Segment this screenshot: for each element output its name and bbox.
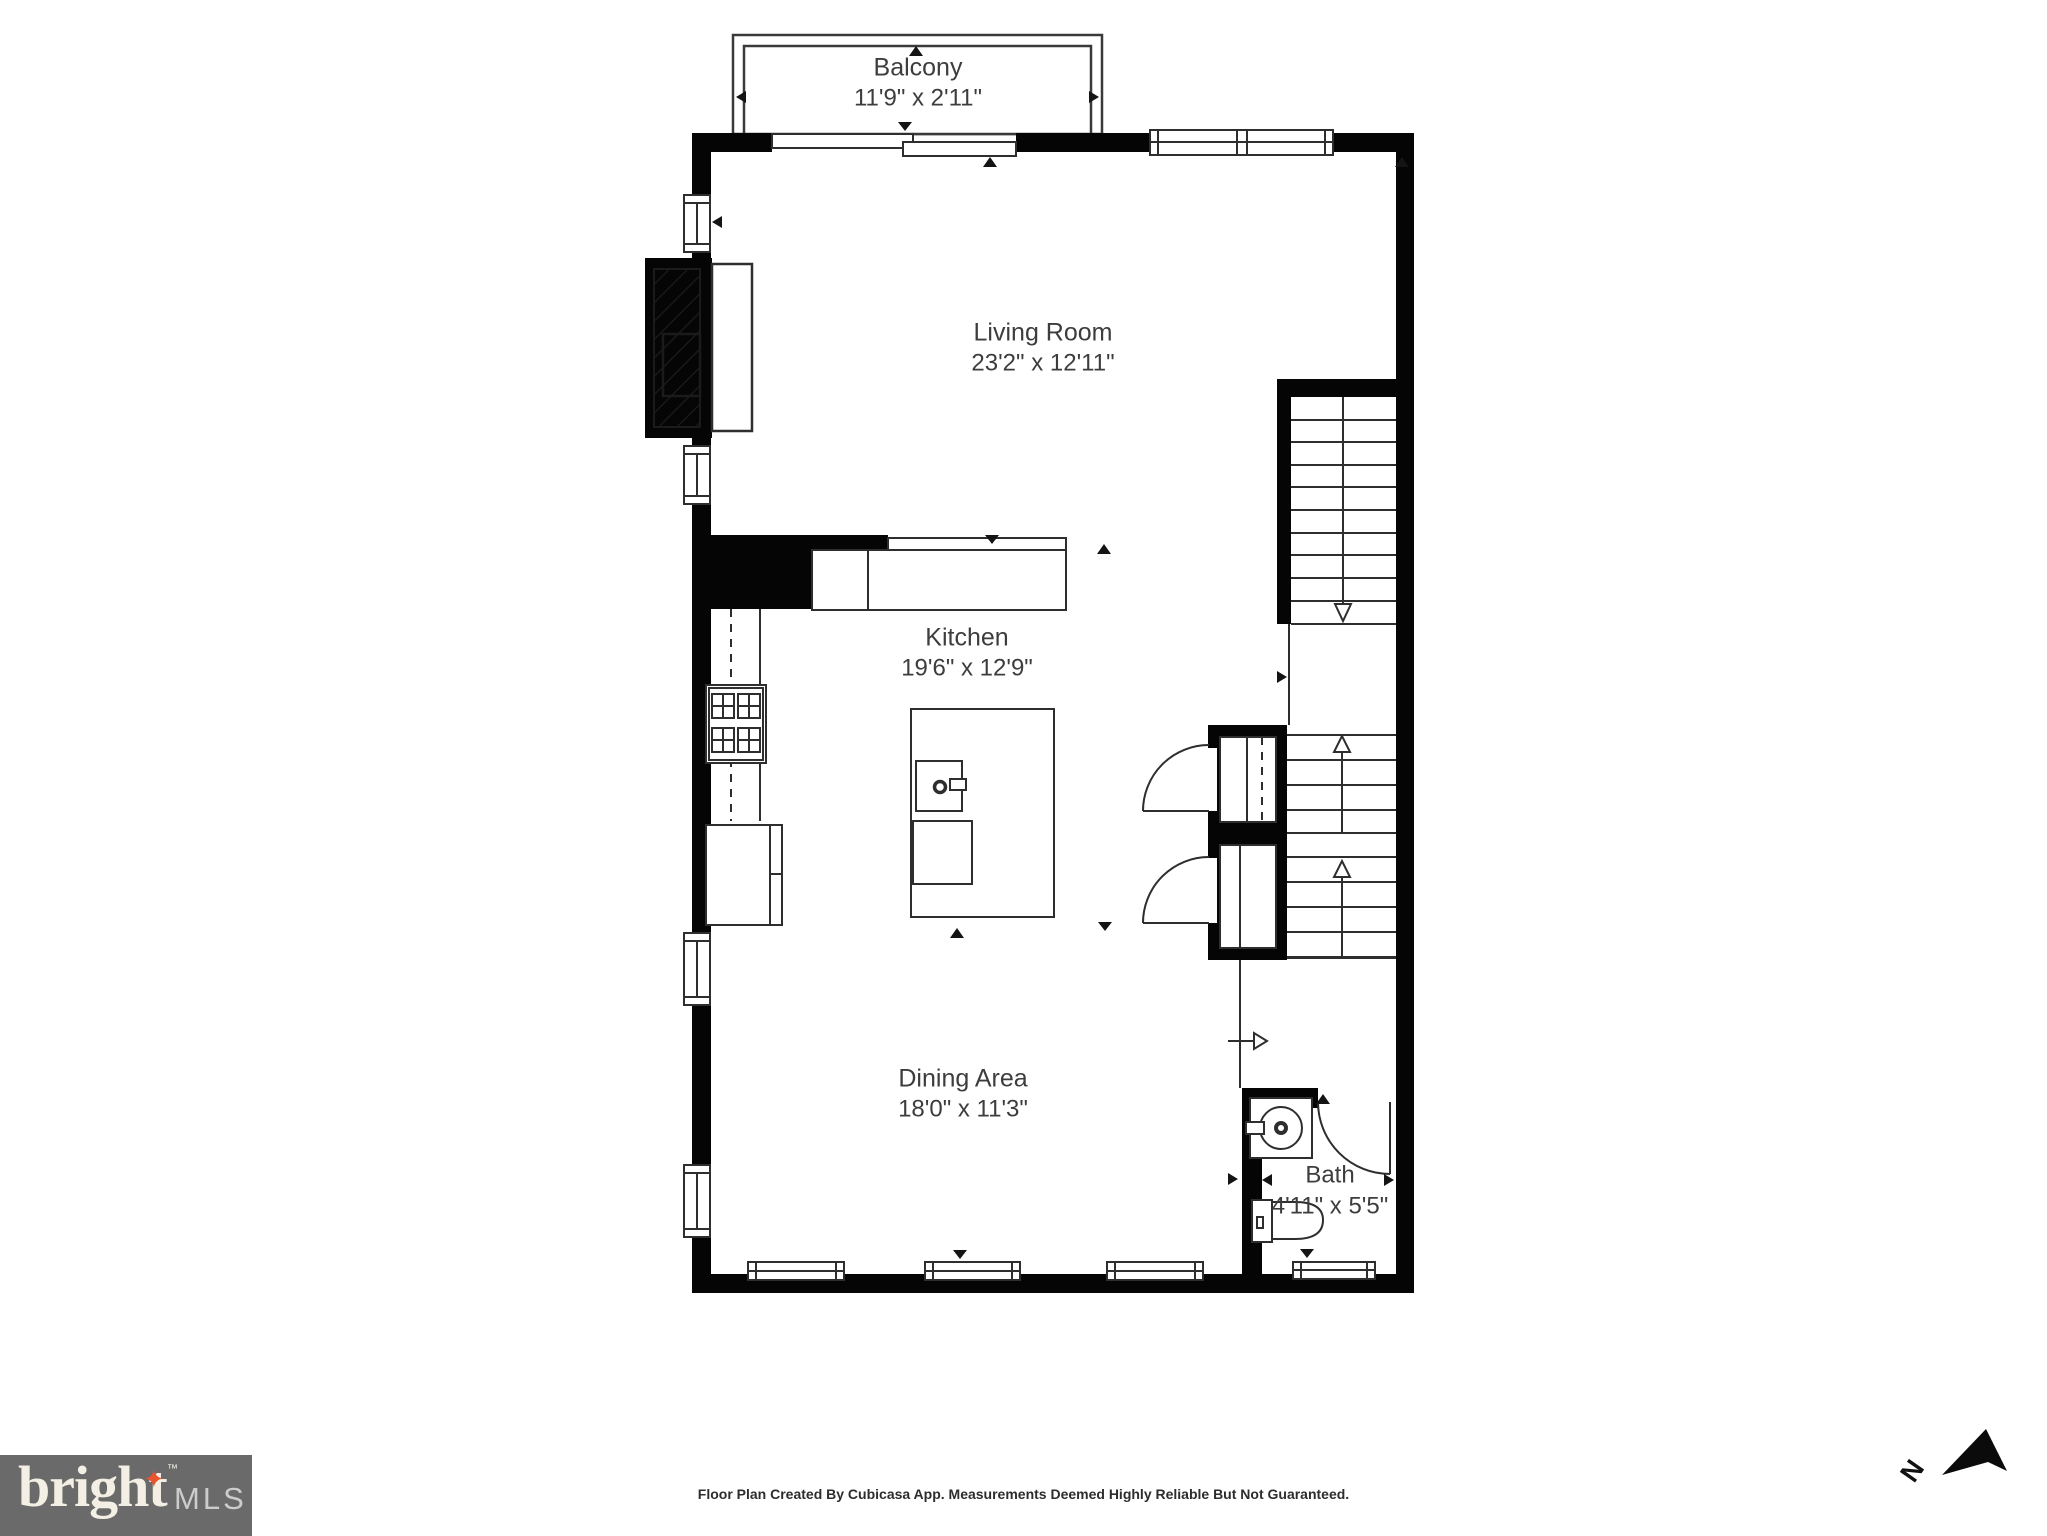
door-opening [1203, 748, 1217, 811]
kitchen-counter [812, 550, 1066, 610]
stairs-up-arrow [1334, 736, 1350, 752]
balcony-label: Balcony 11'9" x 2'11" [854, 52, 982, 115]
wall-kitchen-strip [812, 535, 888, 550]
staircase-lower [1287, 735, 1396, 957]
floor-plan-page: N Balcony 11'9" x 2'11" Living Room 23'2… [0, 0, 2047, 1536]
wall-left [692, 1235, 711, 1274]
window-icon [684, 446, 710, 504]
window-icon [1107, 1262, 1203, 1280]
kitchen-name: Kitchen [901, 622, 1033, 654]
north-arrow-icon: N [1894, 1429, 2007, 1487]
faucet-icon [1246, 1122, 1264, 1134]
wall-top-mid [1016, 133, 1150, 152]
bath-label: Bath 4'11" x 5'5" [1272, 1160, 1389, 1221]
wall-left [692, 1003, 711, 1165]
closet-lower [1220, 845, 1276, 948]
logo-star-icon: ✦ [143, 1464, 165, 1495]
wall-right [1396, 133, 1414, 1293]
hearth [712, 264, 752, 431]
entry-arrow-icon [1228, 1033, 1267, 1049]
sliding-door-icon [772, 134, 1016, 156]
window-icon [1150, 130, 1333, 155]
staircase-upper [1291, 397, 1396, 624]
logo-trademark: ™ [167, 1463, 178, 1475]
window-icon [925, 1262, 1020, 1280]
door-arc-icon [1143, 745, 1209, 811]
refrigerator-icon [706, 825, 782, 925]
kitchen-dims: 19'6" x 12'9" [901, 654, 1033, 685]
kitchen-island-icon [911, 709, 1054, 917]
bath-dims: 4'11" x 5'5" [1272, 1191, 1389, 1222]
window-icon [684, 1165, 710, 1237]
stairs-up-arrow [1334, 861, 1350, 877]
footer-credit: Floor Plan Created By Cubicasa App. Meas… [0, 1486, 2047, 1502]
flow-markers [712, 46, 1409, 1259]
window-icon [684, 195, 710, 252]
kitchen-label: Kitchen 19'6" x 12'9" [901, 622, 1033, 685]
window-icon [684, 933, 710, 1005]
bath-name: Bath [1272, 1160, 1389, 1191]
dining-area-name: Dining Area [898, 1063, 1028, 1095]
wall-stairwell-left [1277, 379, 1291, 624]
balcony-dims: 11'9" x 2'11" [854, 84, 982, 115]
living-room-name: Living Room [971, 317, 1114, 349]
door-opening [1203, 858, 1217, 923]
door-arc-icon [1143, 857, 1209, 923]
floor-plan-drawing: N [0, 0, 2047, 1536]
wall-stairwell-top [1277, 379, 1396, 397]
wall-left [692, 504, 711, 535]
fireplace-icon [645, 258, 752, 438]
dining-area-label: Dining Area 18'0" x 11'3" [898, 1063, 1028, 1126]
wall-left [692, 133, 711, 197]
stove-icon [706, 685, 766, 763]
stairs-down-arrow [1335, 604, 1351, 621]
wall-kitchen-block [692, 535, 812, 609]
living-room-dims: 23'2" x 12'11" [971, 349, 1114, 380]
logo-suffix: MLS [174, 1481, 247, 1517]
dining-area-dims: 18'0" x 11'3" [898, 1095, 1028, 1126]
living-room-label: Living Room 23'2" x 12'11" [971, 317, 1114, 380]
balcony-name: Balcony [854, 52, 982, 84]
bright-mls-logo: bright ✦ ™ MLS [0, 1455, 252, 1536]
window-icon [748, 1262, 844, 1280]
north-label: N [1894, 1454, 1930, 1487]
dishwasher-icon [913, 821, 972, 884]
window-icon [1293, 1262, 1375, 1279]
